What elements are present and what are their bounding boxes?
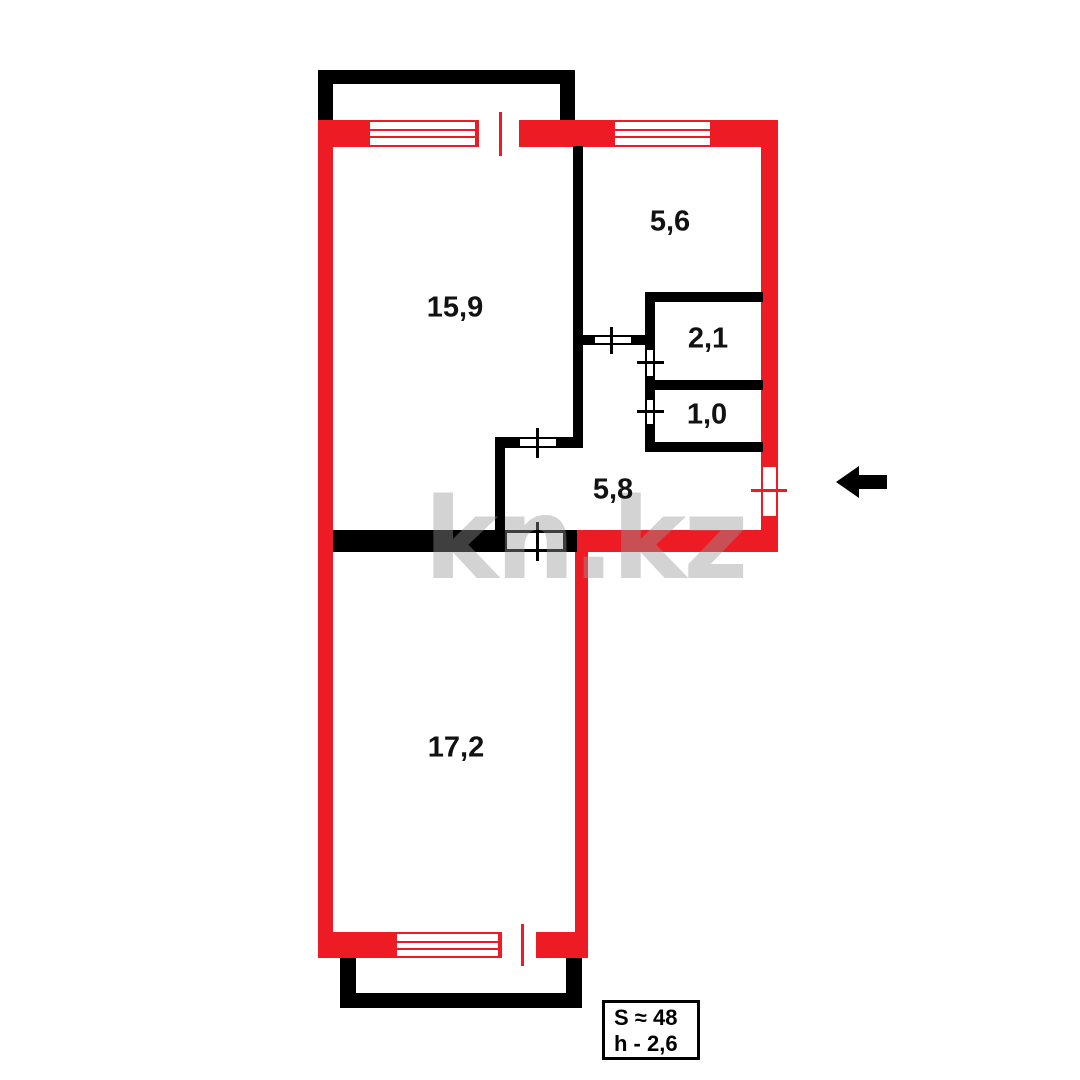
balcony-door-bottom-tick xyxy=(521,924,524,966)
room-area-label-toilet: 1,0 xyxy=(687,399,727,432)
window-living-room xyxy=(368,120,477,147)
room-area-label-hallway: 5,8 xyxy=(593,474,633,507)
legend-total-area: S ≈ 48 xyxy=(614,1005,697,1031)
hallway-bottom-wall xyxy=(575,530,778,552)
bedroom-door-opening xyxy=(507,530,563,552)
kitchen-door-tick xyxy=(610,327,613,354)
kitchen-wall-segment xyxy=(583,335,595,345)
kitchen-wall-segment xyxy=(631,335,645,345)
entrance-arrow-head xyxy=(836,466,859,498)
partition-living-kitchen xyxy=(573,146,583,448)
bathroom-left-wall xyxy=(645,292,655,350)
bedroom-right-wall xyxy=(575,530,588,958)
balcony-top-wall-right xyxy=(560,70,575,120)
legend-box: S ≈ 48 h - 2,6 xyxy=(602,1000,700,1060)
bathroom-top-wall xyxy=(645,292,763,302)
balcony-bottom-wall-right xyxy=(566,958,582,1008)
balcony-top-wall-top xyxy=(318,70,575,84)
living-bedroom-wall xyxy=(333,530,507,552)
toilet-bottom-wall xyxy=(645,442,763,452)
bathroom-door-tick xyxy=(637,361,664,364)
toilet-door-tick xyxy=(637,410,664,413)
window-kitchen xyxy=(613,120,712,147)
balcony-bottom-wall-bottom xyxy=(340,993,582,1008)
living-room-door-tick xyxy=(536,428,539,458)
legend-ceiling-height: h - 2,6 xyxy=(614,1031,697,1057)
living-bedroom-wall xyxy=(563,530,577,552)
room-area-label-kitchen: 5,6 xyxy=(650,206,690,239)
living-hall-wall-segment xyxy=(556,437,583,448)
room-area-label-bathroom: 2,1 xyxy=(688,323,728,356)
kitchen-door-opening xyxy=(595,335,631,345)
exterior-wall-left xyxy=(318,120,333,958)
bathroom-toilet-divider xyxy=(645,380,763,390)
room-area-label-living: 15,9 xyxy=(427,292,483,325)
balcony-door-top-tick xyxy=(499,112,502,156)
floor-plan: 15,9 5,6 2,1 1,0 5,8 17,2 kn.kz S ≈ 48 h… xyxy=(0,0,1080,1080)
entrance-arrow-shaft xyxy=(857,475,887,489)
entrance-door-tick xyxy=(751,489,787,492)
room-area-label-bedroom: 17,2 xyxy=(428,732,484,765)
bedroom-door-tick xyxy=(536,522,539,561)
balcony-door-bottom xyxy=(500,932,538,958)
window-bedroom xyxy=(395,932,500,958)
